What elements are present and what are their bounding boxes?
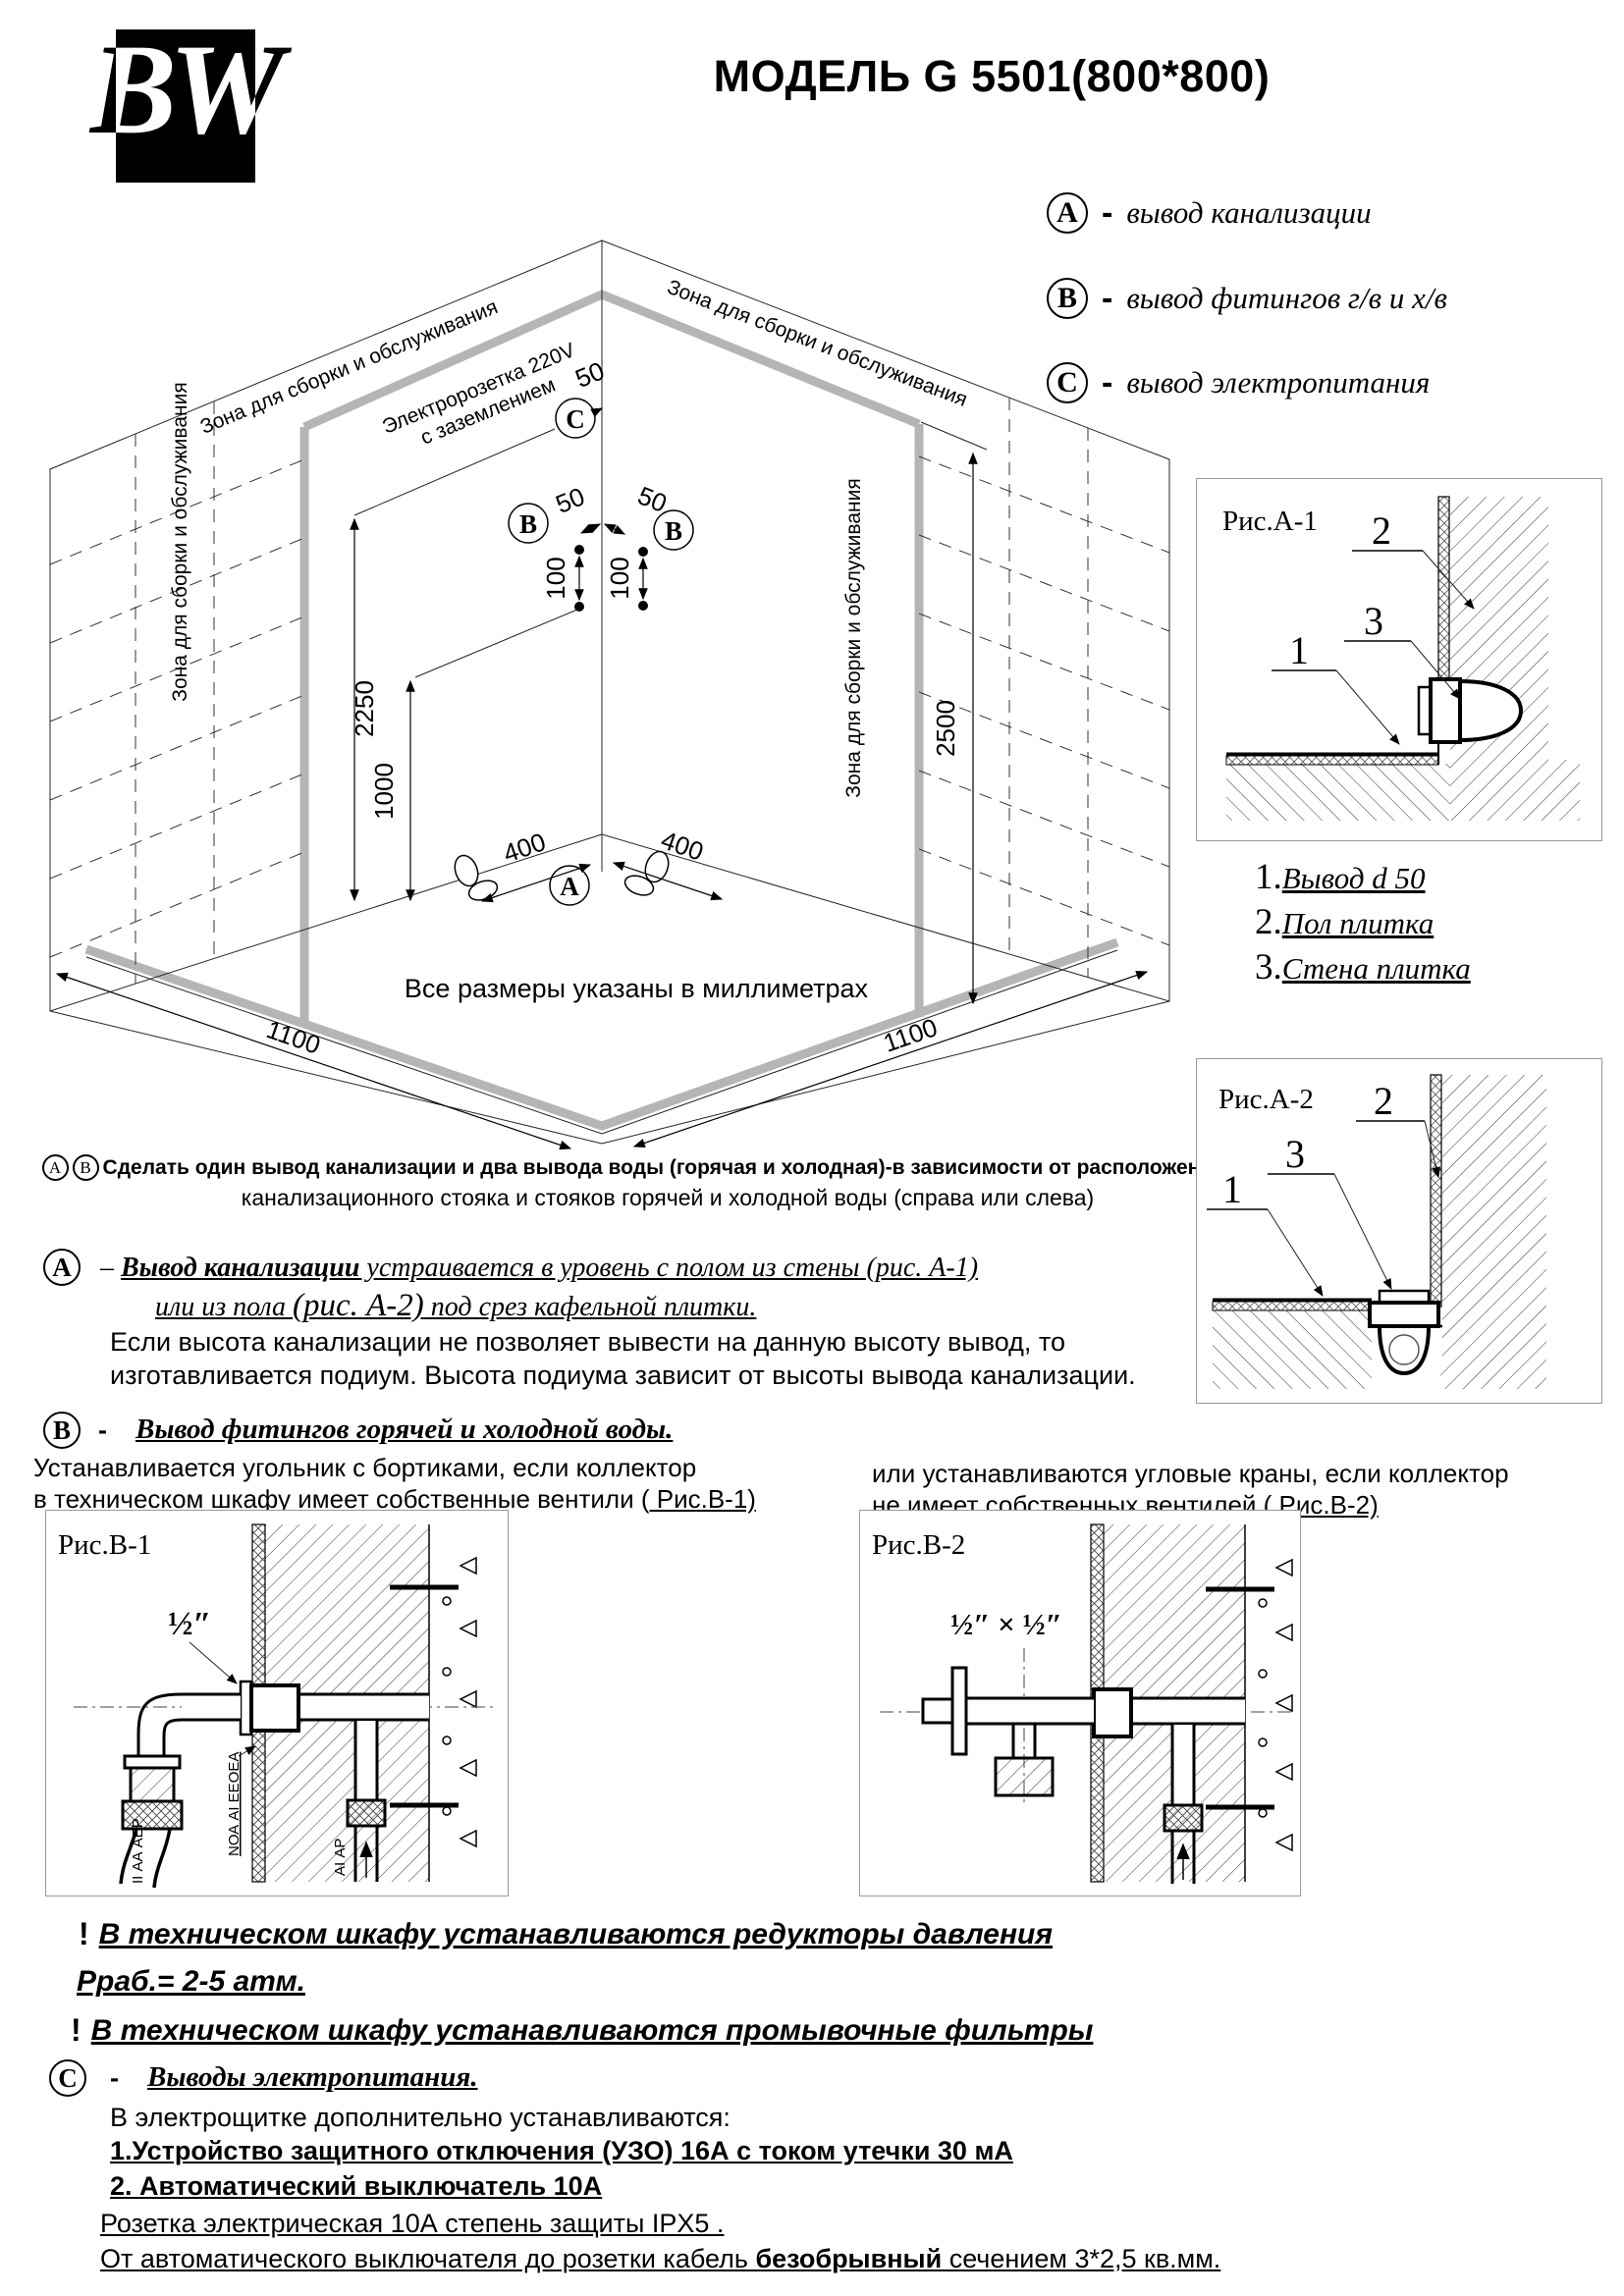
exclamation: ! <box>79 1918 89 1949</box>
section-b-heading: Вывод фитингов горячей и холодной воды. <box>135 1414 673 1446</box>
list-item: 1. Вывод d 50 <box>1255 856 1426 898</box>
callout-2: 1 <box>1222 1167 1242 1211</box>
figure-a1: Рис.А-1 2 3 1 <box>1196 478 1602 841</box>
section-a-heading-line2: или из пола (рис. А-2) под срез кафельно… <box>155 1288 756 1324</box>
point-c-marker: C <box>566 404 585 434</box>
figure-b2: Рис.В-2 <box>859 1510 1301 1896</box>
list-text: Стена плитка <box>1282 951 1471 987</box>
rotated-label-1: II АА АЕР <box>130 1818 146 1884</box>
drain-outlet-floor <box>1370 1291 1438 1373</box>
dim-400: 400 <box>500 827 550 868</box>
list-item: 2. Пол плитка <box>1255 901 1434 943</box>
diagram-footnote: А В Сделать один вывод канализации и два… <box>118 1154 1218 1211</box>
heading-bold: Вывод канализации <box>121 1253 359 1283</box>
dim-50: 50 <box>552 481 589 519</box>
warning-text: В техническом шкафу устанавливаются пром… <box>91 2014 1094 2048</box>
zone-label: Зона для сборки и обслуживания <box>664 276 970 411</box>
rotated-label-3: АI АР <box>332 1839 349 1876</box>
section-c-intro: В электрощитке дополнительно устанавлива… <box>110 2103 731 2133</box>
figure-title: Рис.А-1 <box>1222 506 1318 537</box>
footnote-letter-b: В <box>73 1154 99 1181</box>
dim-2500: 2500 <box>931 700 960 757</box>
list-num: 1. <box>1255 856 1282 898</box>
line4-pre: От автоматического выключателя до розетк… <box>100 2244 755 2273</box>
point-b-marker: B <box>665 516 682 546</box>
footnote-line2: канализационного стояка и стояков горяче… <box>118 1185 1218 1211</box>
rotated-label-2: NОА АI ЕЕОЕА <box>226 1752 243 1856</box>
warning-1b: Рраб.= 2-5 атм. <box>77 1965 305 1999</box>
fig-b1-ref: Рис.В-1) <box>650 1484 756 1514</box>
section-c-line4: От автоматического выключателя до розетк… <box>100 2244 1220 2274</box>
callout-3: 2 <box>1374 1079 1393 1123</box>
figure-title: Рис.А-2 <box>1218 1084 1314 1115</box>
wall-floor-section <box>1226 497 1580 821</box>
point-a-marker: A <box>560 872 579 901</box>
units-note: Все размеры указаны в миллиметрах <box>405 974 869 1003</box>
list-num: 2. <box>1255 901 1282 943</box>
line2-pre: или из пола <box>155 1292 293 1322</box>
line2-post: под срез кафельной плитки. <box>424 1292 757 1322</box>
footnote-line1: Сделать один вывод канализации и два выв… <box>103 1156 1294 1180</box>
warning-text: В техническом шкафу устанавливаются реду… <box>99 1918 1053 1951</box>
figure-title: Рис.В-1 <box>58 1529 151 1561</box>
size-label: ½″ × ½″ <box>950 1607 1062 1641</box>
section-a-heading: – Вывод канализации устраивается в урове… <box>100 1253 978 1284</box>
callout-3: 2 <box>1372 508 1391 553</box>
list-item: 3. Стена плитка <box>1255 946 1471 988</box>
section-a-marker: A <box>43 1249 81 1286</box>
warning-1: ! В техническом шкафу устанавливаются ре… <box>79 1918 1053 1951</box>
drain-outlet-wall <box>1419 679 1521 742</box>
list-text: Вывод d 50 <box>1282 861 1426 896</box>
dim-2250: 2250 <box>350 680 379 737</box>
callout-1: 3 <box>1285 1132 1305 1176</box>
warning-2: ! В техническом шкафу устанавливаются пр… <box>71 2014 1093 2048</box>
callout-1: 3 <box>1364 599 1383 643</box>
line4-bold: безобрывный <box>755 2244 942 2273</box>
logo-script-icon: BW <box>90 22 365 158</box>
section-a-body1: Если высота канализации не позволяет выв… <box>110 1327 1065 1358</box>
section-b-right1: или устанавливаются угловые краны, если … <box>872 1459 1509 1489</box>
warning-text: Рраб.= 2-5 атм. <box>77 1965 305 1999</box>
line4-post: сечением 3*2,5 кв.мм. <box>942 2244 1220 2273</box>
page-title: МОДЕЛЬ G 5501(800*800) <box>530 51 1453 102</box>
walls-outline <box>50 240 1169 1144</box>
section-b-left1: Устанавливается угольник с бортиками, ес… <box>33 1453 696 1483</box>
list-num: 3. <box>1255 946 1282 988</box>
section-c-item1: 1.Устройство защитного отключения (УЗО) … <box>110 2136 1013 2166</box>
dim-100: 100 <box>541 557 570 599</box>
section-c-item2: 2. Автоматический выключатель 10А <box>110 2171 602 2202</box>
section-c-marker: C <box>49 2059 86 2097</box>
dash: – <box>100 1253 114 1283</box>
document-page: BW МОДЕЛЬ G 5501(800*800) A - вывод кана… <box>0 0 1624 2296</box>
dim-50: 50 <box>571 355 609 394</box>
point-b-marker: B <box>519 509 537 539</box>
line2-fig-ref: (рис. А-2) <box>293 1288 424 1323</box>
zone-label: Зона для сборки и обслуживания <box>842 478 865 797</box>
water-fittings: B B 100 100 50 50 <box>509 480 693 612</box>
footnote-letter-a: А <box>42 1154 69 1181</box>
dim-1100: 1100 <box>263 1014 325 1060</box>
list-text: Пол плитка <box>1282 906 1435 941</box>
heading-rest: устраивается в уровень с полом из стены … <box>359 1253 978 1283</box>
height-dimensions: 2250 1000 2500 <box>350 422 987 1003</box>
callout-2: 1 <box>1289 628 1309 672</box>
dim-100: 100 <box>605 557 634 599</box>
section-b-marker: B <box>43 1412 81 1449</box>
zone-label: Зона для сборки и обслуживания <box>169 382 191 701</box>
figure-a2: Рис.А-2 2 3 1 <box>1196 1058 1602 1404</box>
section-c-line3: Розетка электрическая 10А степень защиты… <box>100 2209 724 2239</box>
section-c-heading: Выводы электропитания. <box>147 2061 478 2094</box>
dash: - <box>98 1415 107 1446</box>
figure-title: Рис.В-2 <box>872 1529 965 1561</box>
right-wall-tile-grid <box>919 398 1169 978</box>
size-label: ½″ <box>168 1606 211 1642</box>
dash: - <box>110 2063 119 2094</box>
dim-1000: 1000 <box>369 763 399 820</box>
exclamation: ! <box>71 2014 81 2046</box>
figure-b1: Рис.В-1 <box>45 1510 509 1896</box>
section-a-body2: изготавливается подиум. Высота подиума з… <box>110 1361 1136 1391</box>
installation-diagram: Зона для сборки и обслуживания Зона для … <box>27 226 1186 1168</box>
